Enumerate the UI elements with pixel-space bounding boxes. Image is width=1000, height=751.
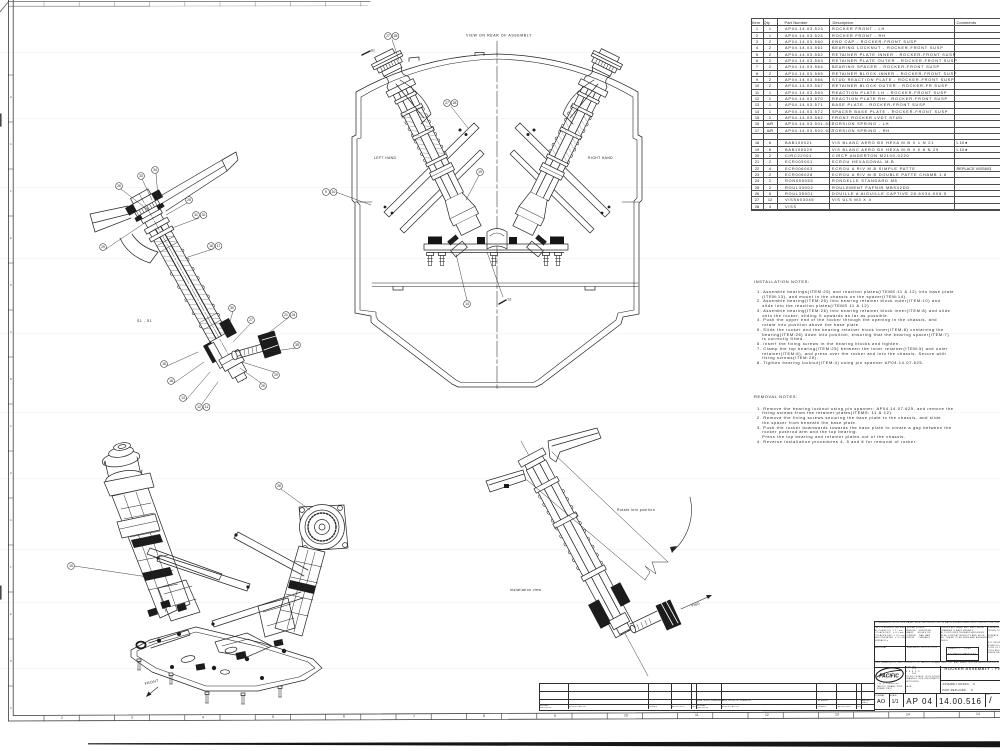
svg-text:14: 14: [976, 712, 980, 716]
svg-text:27: 27: [249, 318, 253, 322]
svg-text:10: 10: [624, 714, 628, 718]
svg-text:10: 10: [332, 190, 336, 194]
svg-text:H: H: [10, 95, 12, 99]
svg-text:9: 9: [554, 714, 556, 718]
svg-text:34: 34: [153, 168, 157, 172]
svg-text:Rotate into position: Rotate into position: [617, 508, 655, 512]
svg-text:C: C: [10, 706, 13, 710]
svg-text:27: 27: [386, 34, 390, 38]
svg-text:26: 26: [261, 384, 265, 388]
svg-text:B: B: [10, 377, 12, 381]
svg-text:16: 16: [209, 244, 213, 248]
svg-text:28: 28: [277, 484, 281, 488]
svg-text:7: 7: [413, 714, 415, 718]
svg-text:33: 33: [139, 174, 143, 178]
svg-text:S1 - S1: S1 - S1: [137, 319, 152, 323]
svg-text:28: 28: [453, 101, 457, 105]
svg-text:19: 19: [478, 170, 482, 174]
svg-text:3: 3: [131, 716, 133, 720]
svg-text:9: 9: [325, 190, 327, 194]
svg-text:13: 13: [181, 396, 185, 400]
svg-text:31: 31: [194, 213, 198, 217]
svg-text:5: 5: [272, 715, 274, 719]
svg-text:S1: S1: [371, 49, 375, 53]
svg-text:14: 14: [906, 712, 910, 716]
svg-text:2: 2: [61, 716, 63, 720]
svg-text:12: 12: [765, 713, 769, 717]
svg-text:35: 35: [295, 343, 299, 347]
svg-text:E: E: [10, 236, 12, 240]
svg-text:E: E: [10, 612, 12, 616]
svg-text:21: 21: [284, 313, 288, 317]
svg-text:14: 14: [465, 302, 469, 306]
svg-text:11: 11: [695, 713, 699, 717]
svg-text:4: 4: [202, 715, 204, 719]
svg-text:25: 25: [187, 198, 191, 202]
svg-text:S1: S1: [508, 298, 512, 302]
svg-text:27: 27: [445, 101, 449, 105]
svg-text:D: D: [10, 659, 13, 663]
svg-text:15: 15: [69, 564, 73, 568]
svg-text:30: 30: [230, 306, 234, 310]
svg-text:32: 32: [202, 213, 206, 217]
svg-text:12: 12: [197, 405, 201, 409]
svg-text:D: D: [10, 283, 13, 287]
svg-text:G: G: [10, 142, 13, 146]
svg-text:18: 18: [162, 362, 166, 366]
svg-text:13: 13: [835, 713, 839, 717]
svg-text:29: 29: [274, 373, 278, 377]
svg-text:G: G: [10, 518, 13, 522]
svg-text:11: 11: [205, 405, 209, 409]
svg-text:6: 6: [343, 715, 345, 719]
svg-text:installation view: installation view: [510, 588, 541, 592]
svg-text:29: 29: [101, 245, 105, 249]
svg-text:H: H: [10, 471, 12, 475]
svg-text:LEFT HAND: LEFT HAND: [374, 156, 397, 160]
svg-text:24: 24: [292, 313, 296, 317]
svg-text:F: F: [10, 565, 12, 569]
svg-text:RIGHT HAND: RIGHT HAND: [588, 156, 613, 160]
svg-text:VIEW ON REAR OF ASSEMBLY: VIEW ON REAR OF ASSEMBLY: [466, 34, 532, 38]
svg-text:16: 16: [169, 379, 173, 383]
svg-text:17: 17: [217, 244, 221, 248]
svg-text:8: 8: [483, 714, 485, 718]
svg-text:PACIFIC: PACIFIC: [879, 673, 899, 679]
svg-text:F: F: [10, 189, 12, 193]
svg-text:28: 28: [394, 34, 398, 38]
svg-text:A: A: [10, 424, 12, 428]
svg-text:FRONT: FRONT: [144, 678, 159, 685]
